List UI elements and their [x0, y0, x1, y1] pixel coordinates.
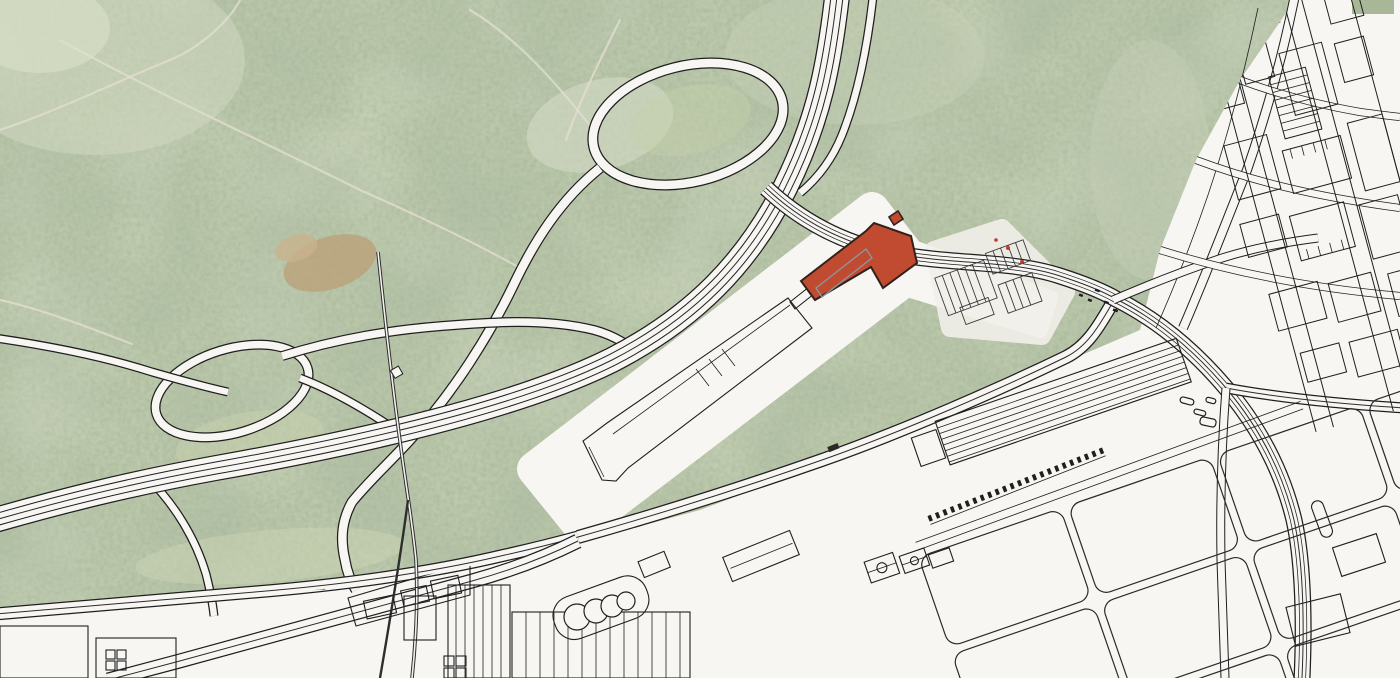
east-junction-road-down: [1221, 388, 1226, 678]
site-plan-stage: Aerial site plan: motorway interchange, …: [0, 0, 1400, 678]
red-dot-1: [1006, 246, 1010, 250]
site-plan-drawing: Aerial site plan: motorway interchange, …: [0, 0, 1400, 678]
aerial-sliver-northeast: [1352, 0, 1394, 14]
red-dot-2: [1020, 260, 1024, 264]
red-dot-3: [994, 238, 998, 242]
